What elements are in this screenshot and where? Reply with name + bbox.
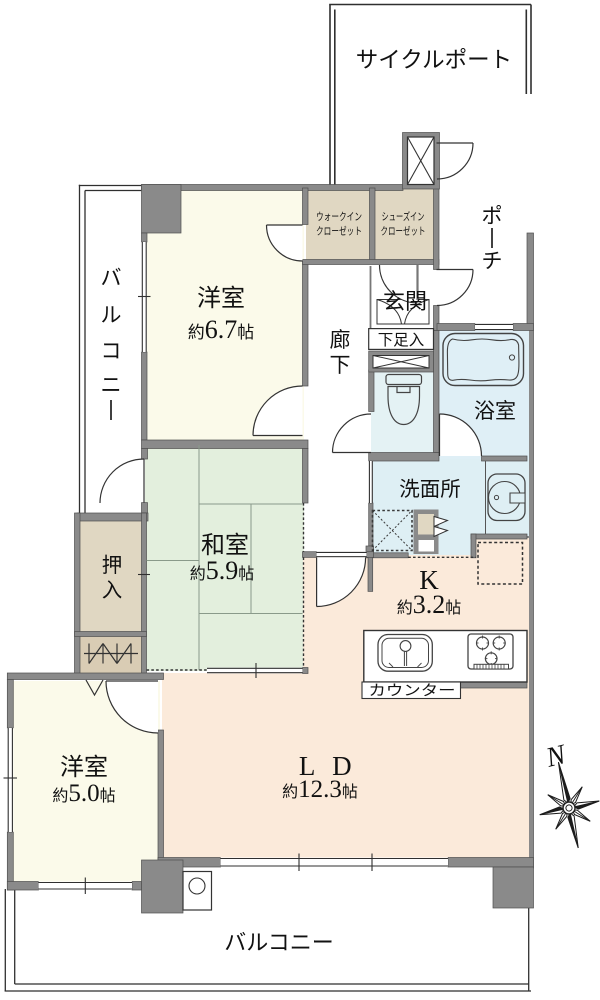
svg-text:ニ: ニ bbox=[101, 373, 122, 397]
svg-text:クローゼット: クローゼット bbox=[316, 226, 362, 238]
svg-text:入: 入 bbox=[102, 580, 123, 602]
svg-text:バルコニー: バルコニー bbox=[224, 930, 334, 955]
svg-text:下足入: 下足入 bbox=[378, 332, 425, 349]
svg-text:洗面所: 洗面所 bbox=[399, 478, 461, 501]
svg-text:チ: チ bbox=[482, 249, 503, 273]
svg-text:和室: 和室 bbox=[201, 532, 249, 559]
svg-text:バ: バ bbox=[101, 266, 122, 290]
svg-text:廊: 廊 bbox=[330, 328, 351, 352]
svg-text:カウンター: カウンター bbox=[369, 683, 456, 700]
svg-text:サイクルポート: サイクルポート bbox=[356, 48, 512, 73]
svg-text:下: 下 bbox=[330, 353, 351, 377]
svg-text:クローゼット: クローゼット bbox=[381, 226, 426, 238]
svg-text:シューズイン: シューズイン bbox=[382, 210, 425, 223]
svg-text:コ: コ bbox=[101, 339, 122, 363]
svg-text:洋室: 洋室 bbox=[60, 754, 108, 781]
svg-text:洋室: 洋室 bbox=[197, 285, 245, 312]
svg-text:ウォークイン: ウォークイン bbox=[316, 211, 362, 223]
svg-text:ル: ル bbox=[101, 303, 122, 327]
svg-text:ポ: ポ bbox=[482, 204, 503, 228]
svg-text:玄関: 玄関 bbox=[383, 289, 427, 314]
svg-text:浴室: 浴室 bbox=[474, 399, 516, 423]
svg-text:押: 押 bbox=[102, 554, 123, 577]
